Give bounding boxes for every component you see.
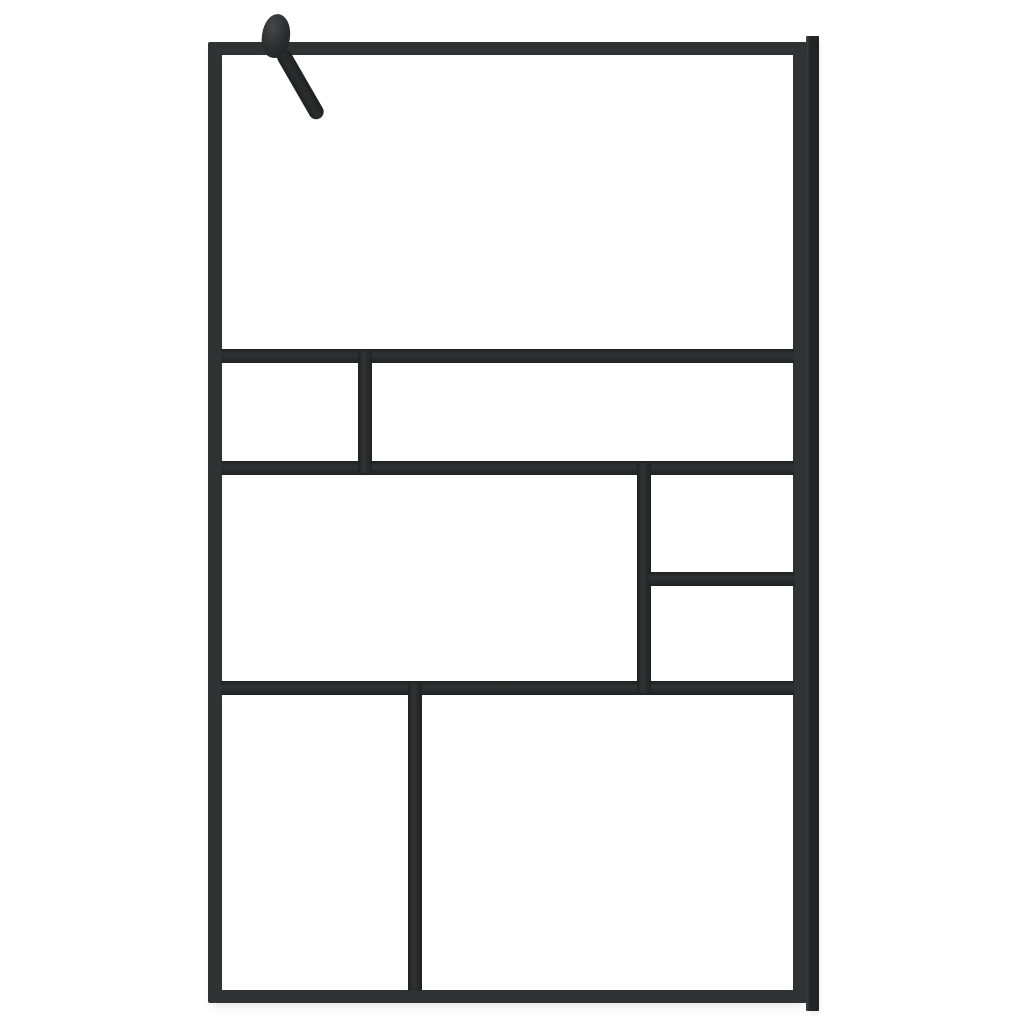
glass-panel-bottom-right [422, 695, 793, 990]
glass-panel-center [222, 475, 637, 681]
wall-profile-rail [806, 36, 819, 1011]
horizontal-bar-lower [221, 681, 794, 695]
vertical-divider-lower [408, 683, 422, 991]
glass-panel-mid-left [222, 363, 358, 461]
horizontal-bar-right-column [649, 572, 795, 586]
glass-panel-right-upper [651, 475, 793, 572]
glass-panel-mid-right [372, 363, 793, 461]
glass-panel-right-lower [651, 586, 793, 681]
vertical-divider-upper [358, 351, 372, 473]
product-photo-shower-screen [0, 0, 1024, 1024]
horizontal-bar-middle [221, 461, 794, 475]
horizontal-bar-upper [221, 349, 794, 363]
glass-panel-bottom-left [222, 695, 408, 990]
